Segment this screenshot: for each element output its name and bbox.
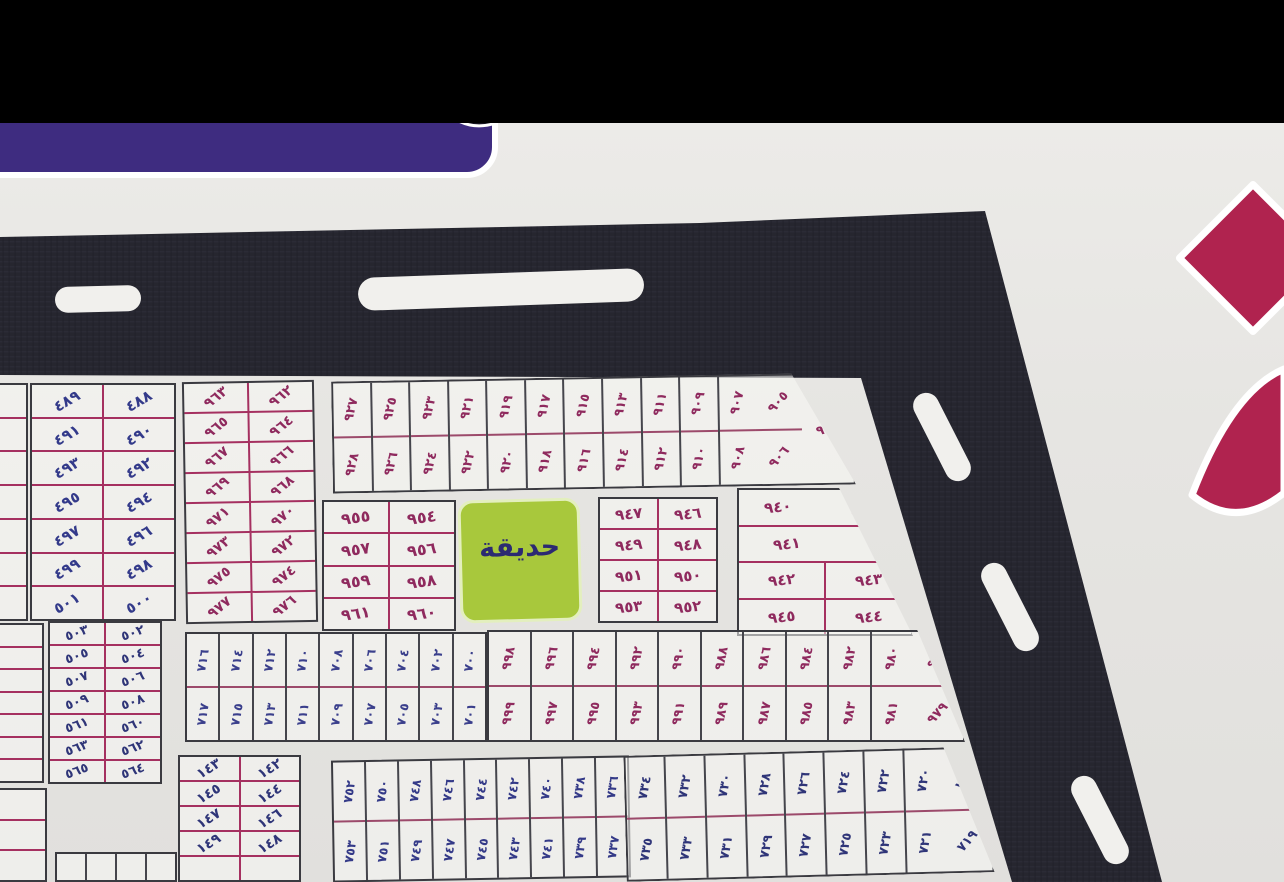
plot-number: ٧٣٩ [571, 835, 589, 860]
plot-number: ٩١٤ [613, 447, 633, 474]
plot-cell: ٧٢٧ [786, 813, 825, 876]
plot-number: ٩٥٨ [406, 570, 438, 593]
plot-cell: ٧٤١ [531, 817, 563, 878]
plot-number: ٩٦٣ [201, 383, 231, 412]
plot-number: ٧١٩ [955, 827, 982, 855]
plot-row: ٩٧٣٩٧٢ [187, 530, 316, 562]
plot-cell [0, 486, 26, 518]
plot-row: ١٤٧١٤٦ [180, 805, 299, 830]
plot-cell: ٩٧٧ [188, 593, 251, 622]
plot-number: ٩٦١ [340, 602, 372, 625]
plot-cell: ٧٤٤ [465, 760, 497, 819]
plot-number: ٥٠٤ [119, 645, 147, 667]
plot-cell: ٧٠٦ [354, 634, 385, 686]
plot-column: ٩١٩٩٢٠ [485, 380, 525, 489]
plot-number: ٥٦١ [63, 714, 91, 736]
plot-cell: ٧١٧ [187, 686, 218, 740]
plot-cell: ٤٩٤ [102, 486, 174, 518]
plot-row: ٩٥١٩٥٠ [600, 559, 716, 590]
plot-number: ٧٤١ [538, 835, 556, 860]
plot-cell: ٩٢٣ [410, 382, 447, 436]
plot-number: ٧٢٦ [795, 770, 814, 796]
plot-cell: ٩٨٩ [702, 685, 743, 740]
plot-number: ٤٩٦ [123, 521, 156, 550]
plot-number: ٧٥٢ [340, 779, 358, 804]
plot-cell [0, 738, 42, 759]
plot-number: ٥٠٧ [63, 668, 91, 690]
plot-cell [180, 857, 239, 880]
plot-number: ٧١٢ [260, 647, 279, 672]
plot-number: ٧٣٨ [570, 775, 588, 800]
plot-row [0, 790, 45, 819]
plot-column: ٩٩٦٩٩٧ [530, 632, 573, 740]
plot-number: ٩٨٧ [755, 700, 775, 726]
plot-cell: ٩٥٦ [388, 534, 454, 564]
plot-cell [0, 625, 42, 646]
plot-cell: ٧٣٤ [625, 757, 664, 818]
plot-number: ٧٢٢ [875, 768, 894, 794]
plot-number: ٩٥١ [614, 565, 643, 586]
plot-row: ٩٤٧٩٤٦ [600, 499, 716, 528]
plot-cell: ٩٤٩ [600, 530, 657, 559]
plot-cell: ٧٤٨ [399, 761, 431, 820]
plot-column: ٧٤٦٧٤٧ [430, 760, 465, 879]
plot-cell [239, 857, 300, 880]
plot-number: ٩٧٠ [268, 502, 298, 531]
plot-column: ٧٣٦٧٣٧ [594, 757, 629, 876]
plot-row: ٤٩٥٤٩٤ [32, 484, 174, 518]
plot-number: ٧١٤ [227, 647, 246, 672]
plot-number: ٩١٥ [573, 392, 593, 419]
plot-row [0, 758, 42, 781]
plot-number: ٩٩٥ [585, 700, 605, 726]
plot-cell: ٧٣٠ [705, 755, 744, 816]
plot-cell: ٩٠٥ [755, 375, 802, 429]
plot-cell: ٩١٧ [526, 380, 563, 434]
plot-number: ٧١٧ [193, 701, 212, 726]
plot-cell: ٩٤٧ [600, 499, 657, 528]
plot-number: ٩٥٢ [673, 596, 702, 617]
plot-cell: ٧١٥ [220, 686, 251, 740]
plot-number: ٧١٥ [227, 701, 246, 726]
plot-number: ٧١٦ [193, 647, 212, 672]
plot-number: ٩٦٩ [202, 473, 232, 502]
plot-number: ٧٢٩ [757, 833, 776, 859]
plot-number: ٩١٢ [651, 446, 671, 473]
plot-column: ٩٨٤٩٨٥ [785, 632, 828, 740]
plot-cell: ٩٢١ [449, 381, 486, 435]
plot-number: ٩٧٦ [269, 592, 299, 621]
plot-number: ٩١٠ [690, 445, 710, 472]
plot-cell: ٩٦٤ [247, 412, 312, 441]
plot-number: ٩٥٤ [406, 506, 438, 529]
plot-number: ٩٤٠ [763, 497, 792, 518]
plot-row [0, 849, 45, 880]
plot-column: ٩٩٠٩٩١ [657, 632, 700, 740]
plot-row: ٥٠١٥٠٠ [32, 585, 174, 619]
plot-number: ٩٦٧ [202, 443, 232, 472]
purple-sign-fragment [0, 123, 496, 175]
plot-cell: ٩٧١ [186, 503, 249, 532]
plot-number: ٩٩٧ [542, 700, 562, 726]
plot-cell: ٩١١ [642, 378, 679, 432]
plot-cell [0, 760, 42, 781]
plot-number: ٩٧٢ [268, 532, 298, 561]
plot-cell: ٥٠٧ [50, 669, 104, 690]
plot-cell: ٩٦٩ [186, 473, 249, 502]
plot-number: ٤٩٤ [123, 487, 156, 516]
plot-cell: ٩٨١ [872, 685, 913, 740]
plot-number: ١٤٧ [194, 805, 224, 832]
plot-cell [0, 520, 26, 552]
plot-cell: ٩٩٩ [489, 685, 530, 740]
plot-cell: ٩١٣ [603, 378, 640, 432]
plot-number: ٤٨٩ [51, 386, 84, 415]
plot-number: ٩٤٨ [673, 534, 702, 555]
plot-column: ٧٠٨٧٠٩ [318, 634, 351, 740]
plot-cell: ٩٠٨ [720, 429, 758, 485]
plot-number: ٧٠٨ [327, 647, 346, 672]
plot-column: ٧٠٤٧٠٥ [385, 634, 418, 740]
block-142-149: ١٤٣١٤٢١٤٥١٤٤١٤٧١٤٦١٤٩١٤٨ [178, 755, 301, 882]
plot-cell: ٤٨٨ [102, 385, 174, 417]
plot-cell: ١٤٢ [239, 757, 300, 780]
plot-cell: ٧٤٠ [530, 759, 562, 818]
photo: حديقة ٤٨٩٤٨٨٤٩١٤٩٠٤٩٣٤٩٢٤٩٥٤٩٤٤٩٧٤٩٦٤٩٩٤… [0, 123, 1284, 882]
plot-number: ٩٧٥ [204, 563, 234, 592]
plot-cell: ٤٩٠ [102, 419, 174, 451]
plot-number: ٧٤٠ [537, 775, 555, 800]
plot-cell: ٩٢٤ [411, 435, 449, 491]
plot-cell: ٩٨٧ [744, 685, 785, 740]
plot-cell: ٩٥٠ [657, 561, 716, 590]
plot-cell: ٤٩٣ [32, 452, 102, 484]
plot-column: ٩٩٢٩٩٣ [615, 632, 658, 740]
plot-column: ٧١٤٧١٥ [218, 634, 251, 740]
plot-number: ٩٤٢ [767, 570, 796, 591]
plot-cell: ٩١٠ [681, 430, 719, 486]
plot-cell: ٩٩٨ [489, 632, 530, 685]
plot-cell: ٥٠١ [32, 587, 102, 619]
plot-cell: ٧٠٤ [387, 634, 418, 686]
plot-cell: ٧٢٣ [866, 811, 905, 874]
plot-row [0, 518, 26, 552]
plot-number: ٩٦٦ [267, 442, 297, 471]
plot-cell: ٩٥٤ [388, 502, 454, 532]
plot-number: ٤٩٩ [51, 555, 84, 584]
plot-number: ٩٩٣ [627, 700, 647, 726]
plot-row: ٥٠٥٥٠٤ [50, 644, 160, 667]
plot-cell: ٩٥٥ [324, 502, 388, 532]
plot-cell: ٧٠٩ [320, 686, 351, 740]
plot-number: ٩٧٤ [269, 562, 299, 591]
plot-cell: ٩٩٠ [659, 632, 700, 685]
plot-cell: ٩٨٨ [702, 632, 743, 685]
plot-cell: ٧٣٧ [597, 815, 629, 876]
edge-block-left-mid [0, 623, 44, 783]
plot-cell: ٩٥٨ [388, 567, 454, 597]
plot-row: ٤٩٩٤٩٨ [32, 552, 174, 586]
plot-number: ٥٦٢ [119, 737, 147, 759]
plot-number: ٧٠٧ [360, 701, 379, 726]
plot-cell: ٩٠٦ [756, 428, 803, 484]
plot-row [0, 484, 26, 518]
plot-cell: ٧٤٦ [432, 760, 464, 819]
plot-number: ٩١٣ [612, 392, 632, 419]
plot-cell: ٧٢١ [906, 809, 945, 872]
plot-cell: ٩١٩ [487, 380, 524, 434]
plot-cell: ٧٤٢ [497, 759, 529, 818]
plot-cell: ٩٤٠ [739, 490, 816, 525]
plot-column: ٩٨٠٩٨١ [870, 632, 913, 740]
plot-cell: ٧٢٩ [747, 814, 786, 877]
plot-number: ٩٨٨ [712, 645, 732, 671]
plot-row [0, 646, 42, 669]
plot-cell: ٧٢٠ [904, 749, 943, 810]
plot-number: ٩٤٤ [854, 606, 883, 627]
plot-row [0, 691, 42, 714]
plot-number: ٧٠٠ [460, 647, 479, 672]
plot-cell [0, 790, 45, 819]
plot-column: ٧٠٢٧٠٣ [418, 634, 451, 740]
plot-number: ٧٤٣ [505, 836, 523, 861]
plot-cell: ٧٠٠ [454, 634, 485, 686]
plot-number: ٩٩٨ [499, 645, 519, 671]
plot-column: ٧٢٤٧٢٥ [823, 752, 866, 875]
plot-number: ٩٢٦ [381, 451, 401, 478]
plot-cell: ١٤٩ [180, 832, 239, 855]
plot-cell: ٤٩٧ [32, 520, 102, 552]
plot-number: ٩٩٢ [627, 645, 647, 671]
plot-cell [0, 587, 26, 619]
plot-cell [147, 854, 175, 880]
plot-number: ٩٢١ [457, 394, 477, 421]
plot-number: ٩٨٦ [755, 645, 775, 671]
plot-cell: ٥٦١ [50, 715, 104, 736]
plot-number: ٧٤٨ [406, 778, 424, 803]
plot-number: ٩٨٥ [797, 700, 817, 726]
plot-cell: ١٤٨ [239, 832, 300, 855]
plot-row: ٥٠٣٥٠٢ [50, 623, 160, 644]
plot-cell: ٧٠٧ [354, 686, 385, 740]
plot-cell: ٧٣٥ [627, 817, 666, 880]
plot-number: ٧٤٢ [504, 776, 522, 801]
plot-number: ٩٩٦ [542, 645, 562, 671]
plot-number: ٧٠٥ [393, 701, 412, 726]
plot-number: ٧٤٦ [438, 777, 456, 802]
plot-cell: ٩٢٦ [373, 435, 411, 491]
plot-column: ٩٢٧٩٢٨ [333, 383, 371, 492]
plot-cell: ٤٨٩ [32, 385, 102, 417]
plot-cell: ٧٠١ [454, 686, 485, 740]
plot-number: ٩١٩ [496, 394, 516, 421]
plot-cell: ٩٩٢ [617, 632, 658, 685]
plot-cell: ٩٦٨ [248, 472, 313, 501]
plot-cell: ٥٦٢ [104, 738, 160, 759]
plot-cell: ٧٢٥ [826, 812, 865, 875]
plot-cell: ٤٩١ [32, 419, 102, 451]
plot-column: ٧٢٢٧٢٣ [862, 751, 905, 874]
plot-cell: ٧١٤ [220, 634, 251, 686]
plot-cell: ٥٠٤ [104, 646, 160, 667]
plot-column: ٧٥٢٧٥٣ [333, 762, 366, 881]
plot-number: ١٤٢ [255, 755, 285, 782]
plot-number: ٩٦٢ [266, 382, 296, 411]
plot-column: ٧٣٤٧٣٥ [625, 757, 666, 880]
plot-cell: ٧٥٢ [333, 762, 365, 821]
plot-cell: ٩١٥ [564, 379, 601, 433]
plot-number: ٩٤٧ [614, 503, 643, 524]
plot-column: ٩٩٤٩٩٥ [572, 632, 615, 740]
plot-number: ٧٣٤ [636, 774, 655, 800]
plot-number: ٧٣٥ [637, 836, 656, 862]
plot-number: ٩٩٩ [499, 700, 519, 726]
plot-cell: ٩٩٧ [532, 685, 573, 740]
plot-cell: ٩٦٣ [184, 383, 247, 412]
plot-number: ٤٩٨ [123, 555, 156, 584]
plot-number: ٧٠٩ [327, 701, 346, 726]
plot-cell: ٤٩٦ [102, 520, 174, 552]
plot-column: ٩٨٢٩٨٣ [827, 632, 870, 740]
block-905-928-strip: ٩٢٧٩٢٨٩٢٥٩٢٦٩٢٣٩٢٤٩٢١٩٢٢٩١٩٩٢٠٩١٧٩١٨٩١٥٩… [331, 372, 856, 493]
plot-number: ٩٨١ [882, 700, 902, 726]
plot-column: ٧١٢٧١٣ [252, 634, 285, 740]
plot-cell: ١٤٣ [180, 757, 239, 780]
plot-cell [0, 419, 26, 451]
plot-number: ٩٩١ [670, 700, 690, 726]
plot-column [145, 854, 175, 880]
plot-cell [87, 854, 115, 880]
plot-cell: ٩١٨ [527, 433, 565, 489]
plot-cell: ٤٩٢ [102, 452, 174, 484]
plot-column: ٩٢١٩٢٢ [447, 381, 487, 490]
plot-cell: ٧٠٨ [320, 634, 351, 686]
plot-row: ٤٩٣٤٩٢ [32, 450, 174, 484]
plot-cell: ٩٥٧ [324, 534, 388, 564]
plot-number: ٧٢١ [916, 829, 935, 855]
plot-row [0, 736, 42, 759]
plot-number: ٩٧٧ [204, 593, 234, 622]
plot-number: ٤٩١ [51, 420, 84, 449]
plot-column: ٧٠٦٧٠٧ [352, 634, 385, 740]
plot-cell: ٩٧٣ [187, 533, 250, 562]
plot-column: ٧١٠٧١١ [285, 634, 318, 740]
plot-number: ٩٤٥ [767, 606, 796, 627]
plot-number: ٥٠٩ [63, 691, 91, 713]
plot-number: ١٤٩ [194, 830, 224, 857]
block-700-717: ٧١٦٧١٧٧١٤٧١٥٧١٢٧١٣٧١٠٧١١٧٠٨٧٠٩٧٠٦٧٠٧٧٠٤٧… [185, 632, 487, 742]
plot-cell: ٩٦٢ [247, 382, 312, 411]
plot-cell: ٩٦٠ [388, 599, 454, 629]
plot-cell [0, 821, 45, 850]
plot-number: ٧١١ [293, 701, 312, 726]
garden-square: حديقة [460, 501, 579, 621]
plot-cell: ٩٥١ [600, 561, 657, 590]
plot-number: ٩٦٨ [267, 472, 297, 501]
plot-number: ٧٠٢ [427, 647, 446, 672]
plot-cell: ٤٩٨ [102, 554, 174, 586]
plot-cell: ٩٩٤ [574, 632, 615, 685]
plot-number: ٧٥٠ [373, 778, 391, 803]
plot-cell: ٥٦٣ [50, 738, 104, 759]
plot-cell: ٩٧٥ [187, 563, 250, 592]
plot-column: ٧٢٦٧٢٧ [783, 753, 826, 876]
plot-column: ٩١١٩١٢ [640, 378, 680, 487]
plot-cell: ٩٦٧ [185, 443, 248, 472]
plot-row: ٥٦٣٥٦٢ [50, 736, 160, 759]
plot-column: ٧٤٤٧٤٥ [463, 760, 498, 879]
plot-column: ٩٢٥٩٢٦ [370, 382, 410, 491]
plot-cell: ٩٧٦ [251, 592, 316, 621]
plot-cell: ٧٤٥ [466, 818, 498, 879]
plot-cell: ٧٢٦ [785, 753, 824, 814]
plot-cell: ٥٦٥ [50, 761, 104, 782]
plot-number: ٤٨٨ [123, 386, 156, 415]
plot-cell: ٩٤١ [739, 527, 835, 562]
plot-cell: ٩٦٥ [184, 413, 247, 442]
plot-number: ١٤٨ [255, 830, 285, 857]
plot-number: ٥٠٣ [63, 622, 91, 644]
plot-row: ٩٧٥٩٧٤ [187, 560, 316, 592]
plot-column: ٧٠٠٧٠١ [452, 634, 485, 740]
plot-number: ٩١٨ [535, 448, 555, 475]
plot-number: ٩٢٥ [380, 396, 400, 423]
plot-number: ١٤٦ [255, 805, 285, 832]
plot-cell: ٩٩٣ [617, 685, 658, 740]
plot-row: ٩٧٧٩٧٦ [188, 590, 317, 622]
plot-row: ١٤٩١٤٨ [180, 830, 299, 855]
plot-cell: ٩٨٢ [829, 632, 870, 685]
block-962-977: ٩٦٣٩٦٢٩٦٥٩٦٤٩٦٧٩٦٦٩٦٩٩٦٨٩٧١٩٧٠٩٧٣٩٧٢٩٧٥٩… [182, 380, 318, 624]
plot-column: ٧١٦٧١٧ [187, 634, 218, 740]
plot-cell: ١٤٤ [239, 782, 300, 805]
block-978-999: ٩٩٨٩٩٩٩٩٦٩٩٧٩٩٤٩٩٥٩٩٢٩٩٣٩٩٠٩٩١٩٨٨٩٨٩٩٨٦٩… [487, 630, 965, 742]
plot-cell [117, 854, 145, 880]
plot-row: ٥٠٩٥٠٨ [50, 690, 160, 713]
plot-cell: ٧٥٠ [366, 761, 398, 820]
plot-cell: ٥٠٠ [102, 587, 174, 619]
plot-number: ٧٠٣ [427, 701, 446, 726]
plot-number: ٩٧٣ [203, 533, 233, 562]
edge-block-left-bottom [0, 788, 47, 882]
plot-number: ٩٨٩ [712, 700, 732, 726]
plot-column: ٧٤٠٧٤١ [528, 759, 563, 878]
plot-row: ٩٤٥٩٤٤ [739, 598, 911, 635]
plot-cell: ٧٥٣ [334, 820, 366, 881]
plot-number: ٧٥٣ [341, 839, 359, 864]
plot-cell: ٧٠٢ [420, 634, 451, 686]
plot-row: ٥٠٧٥٠٦ [50, 667, 160, 690]
plot-column: ٧٤٨٧٤٩ [397, 761, 432, 880]
plot-column: ٩١٣٩١٤ [601, 378, 641, 487]
plot-number: ٧٣٠ [715, 772, 734, 798]
plot-cell: ٩٩١ [659, 685, 700, 740]
plot-cell: ٩٥٣ [600, 592, 657, 621]
plot-number: ٧١٠ [293, 647, 312, 672]
plot-cell: ٩١٤ [604, 431, 642, 487]
plot-number: ٩٤٣ [854, 570, 883, 591]
photograph-of-subdivision-map: حديقة ٤٨٩٤٨٨٤٩١٤٩٠٤٩٣٤٩٢٤٩٥٤٩٤٤٩٧٤٩٦٤٩٩٤… [0, 0, 1284, 882]
plot-cell: ٩٦٦ [248, 442, 313, 471]
plot-number: ٩٨٢ [840, 645, 860, 671]
plot-number: ٧١٣ [260, 701, 279, 726]
plot-column [115, 854, 145, 880]
plot-row: ٥٦٥٥٦٤ [50, 759, 160, 782]
plot-number: ٧٣٢ [675, 773, 694, 799]
plot-number: ٩٤٦ [673, 503, 702, 524]
plot-column: ٩٨٦٩٨٧ [742, 632, 785, 740]
plot-number: ٩٢٤ [420, 450, 440, 477]
